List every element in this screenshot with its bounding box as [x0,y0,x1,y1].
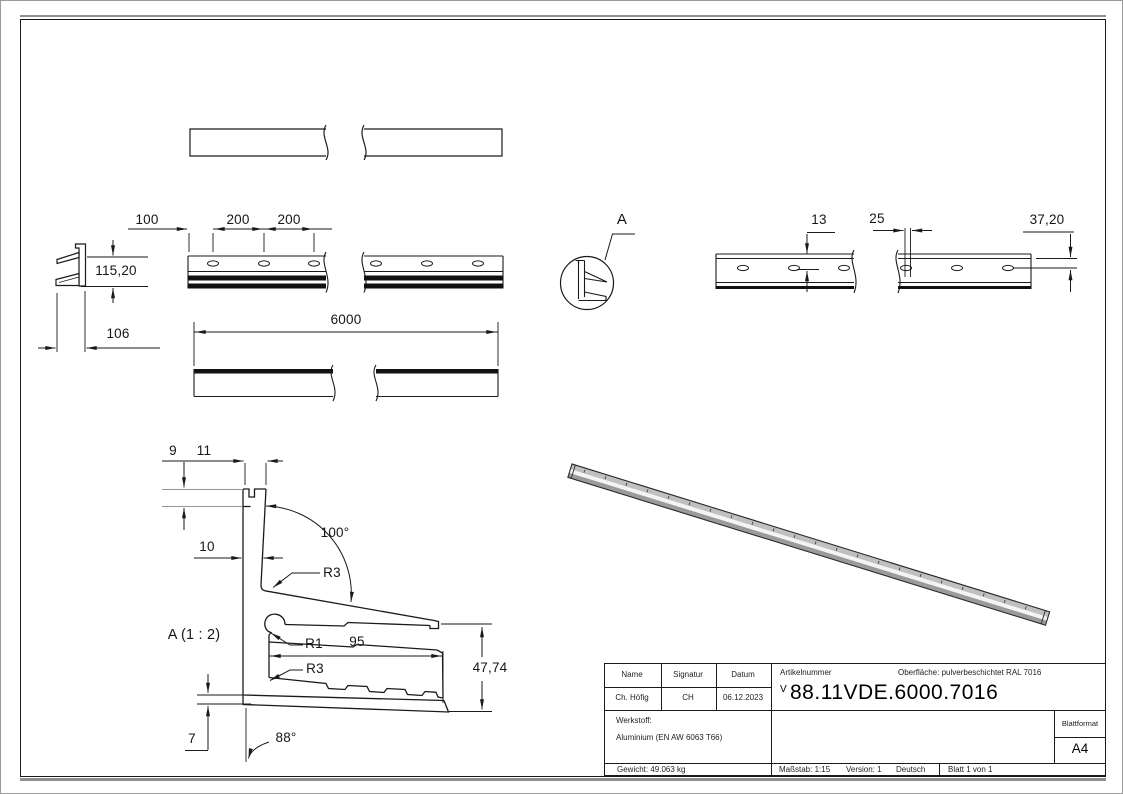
tb-datum-value: 06.12.2023 [723,693,763,702]
dim-10: 10 [199,540,214,555]
tb-werkstoff-value: Aluminium (EN AW 6063 T66) [616,733,722,742]
dim-200-a: 200 [226,213,249,228]
tb-signatur-value: CH [682,693,694,702]
tb-blattformat-label: Blattformat [1062,719,1098,728]
dim-r3-upper: R3 [323,566,341,581]
tb-artikelnummer-prefix: V [780,684,787,695]
dim-r1: R1 [305,637,323,652]
tb-blatt: Blatt 1 von 1 [948,765,992,774]
tb-sprache: Deutsch [896,765,925,774]
tb-datum-label: Datum [731,670,755,679]
bottom-view [194,322,498,401]
dim-95: 95 [349,635,364,650]
dim-angle-88: 88° [275,731,296,746]
rear-elevation [716,228,1077,293]
tb-name-label: Name [621,670,642,679]
tb-artikelnummer-label: Artikelnummer [780,668,832,677]
dim-9: 9 [169,444,177,459]
title-block [604,663,1106,776]
dim-6000: 6000 [331,313,362,328]
dim-25: 25 [869,212,884,227]
top-view [190,125,502,160]
detail-callout-label: A [617,212,627,229]
front-elevation [128,229,503,293]
tb-version: Version: 1 [846,765,882,774]
tb-blattformat-value: A4 [1072,741,1089,756]
dim-angle-100: 100° [321,526,350,541]
dim-11: 11 [197,444,211,459]
dim-r3-lower: R3 [306,662,324,677]
tb-artikelnummer-value: 88.11VDE.6000.7016 [790,681,998,705]
dim-37-20: 37,20 [1030,213,1065,228]
detail-view-title: A (1 : 2) [168,628,221,644]
detail-circle [561,234,636,310]
dim-106: 106 [106,327,129,342]
tb-oberflaeche: Oberfläche: pulverbeschichtet RAL 7016 [898,668,1041,677]
isometric-view [568,464,1050,625]
tb-massstab: Maßstab: 1:15 [779,765,830,774]
dim-200-b: 200 [277,213,300,228]
end-view [38,240,160,352]
dim-7: 7 [188,732,196,747]
detail-view [162,461,492,762]
tb-werkstoff-label: Werkstoff: [616,716,652,725]
tb-name-value: Ch. Höfig [615,693,648,702]
dim-47-74: 47,74 [473,661,508,676]
dim-13: 13 [811,213,826,228]
tb-gewicht: Gewicht: 49.063 kg [617,765,685,774]
dim-115-20: 115,20 [95,264,137,279]
tb-signatur-label: Signatur [673,670,703,679]
dim-100: 100 [135,213,158,228]
drawing-sheet: 100 200 200 115,20 106 6000 A 13 25 37,2… [0,0,1123,794]
